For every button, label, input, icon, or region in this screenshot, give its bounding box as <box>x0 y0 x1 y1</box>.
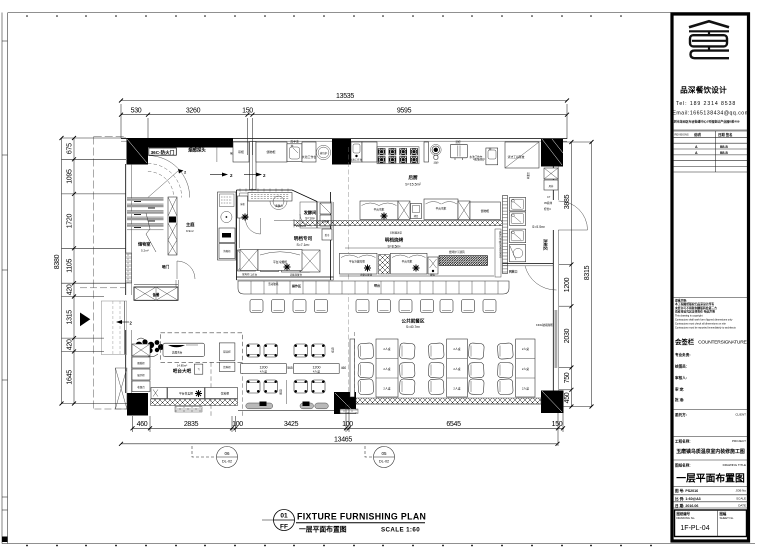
svg-text:平台售卖柜: 平台售卖柜 <box>179 392 193 396</box>
svg-text:Contractors shall work form: Contractors shall work form figured dime… <box>675 318 733 321</box>
svg-text:2人桌: 2人桌 <box>383 387 390 391</box>
svg-text:平台雪柜: 平台雪柜 <box>374 208 385 212</box>
svg-text:9.9m²: 9.9m² <box>186 229 194 233</box>
svg-text:DL-02: DL-02 <box>379 460 389 464</box>
svg-text:1105: 1105 <box>67 258 74 272</box>
svg-text:甜品柜: 甜品柜 <box>223 350 231 354</box>
svg-text:2人桌: 2人桌 <box>453 387 460 391</box>
svg-text:柜位C: 柜位C <box>544 207 551 211</box>
svg-text:2人桌: 2人桌 <box>383 347 390 351</box>
svg-text:日期 签名: 日期 签名 <box>718 132 733 137</box>
svg-text:5.2m²: 5.2m² <box>141 249 149 253</box>
svg-text:冰柜: 冰柜 <box>240 202 245 206</box>
svg-text:说明: 说明 <box>694 132 701 137</box>
svg-text:展示柜: 展示柜 <box>137 373 145 377</box>
svg-text:This drawing is copyright: This drawing is copyright <box>675 314 703 317</box>
svg-text:2人桌: 2人桌 <box>522 347 529 351</box>
svg-text:一层平面布置图: 一层平面布置图 <box>676 472 745 485</box>
svg-text:洗手池: 洗手池 <box>290 140 299 144</box>
svg-text:9595: 9595 <box>397 107 412 114</box>
svg-text:深圳市龙岗区布吉街道中心1号福安达产业园B栋409: 深圳市龙岗区布吉街道中心1号福安达产业园B栋409 <box>671 119 740 124</box>
svg-text:水池工作台: 水池工作台 <box>301 154 316 159</box>
svg-text:烟感探头: 烟感探头 <box>188 147 206 154</box>
svg-text:水池工作台: 水池工作台 <box>470 155 483 159</box>
svg-text:DL-02: DL-02 <box>222 460 232 464</box>
svg-text:2835: 2835 <box>184 421 199 428</box>
svg-text:C7: C7 <box>547 195 551 199</box>
svg-text:绘图员:: 绘图员: <box>675 364 687 369</box>
svg-text:日 期: 2016.06: 日 期: 2016.06 <box>675 503 698 508</box>
svg-text:750: 750 <box>564 372 571 383</box>
svg-text:4人桌: 4人桌 <box>260 370 267 374</box>
svg-text:储物柜: 储物柜 <box>266 149 275 154</box>
svg-text:水池工作台500X600X800: 水池工作台500X600X800 <box>499 231 503 259</box>
svg-text:Tel: 189 2314 8538: Tel: 189 2314 8538 <box>676 101 736 107</box>
svg-text:06: 06 <box>224 451 230 456</box>
svg-text:450: 450 <box>564 392 571 403</box>
svg-text:工作台: 工作台 <box>250 273 258 277</box>
svg-text:图纸名称:: 图纸名称: <box>675 463 691 468</box>
svg-text:会签栏: 会签栏 <box>675 337 695 346</box>
svg-text:2人桌: 2人桌 <box>453 347 460 351</box>
svg-text:审核人:: 审核人: <box>675 375 687 380</box>
svg-text:明档烧烤: 明档烧烤 <box>385 237 404 244</box>
svg-text:FF: FF <box>280 524 288 531</box>
svg-text:SCALE: SCALE <box>736 497 746 501</box>
svg-text:调味就餐台: 调味就餐台 <box>290 273 303 277</box>
svg-text:汤炉: 汤炉 <box>433 161 439 165</box>
svg-text:BB.B: BB.B <box>720 151 728 155</box>
svg-text:8315: 8315 <box>584 265 591 280</box>
svg-text:1095: 1095 <box>67 169 74 184</box>
svg-text:530: 530 <box>131 107 142 114</box>
svg-text:公共就餐区: 公共就餐区 <box>402 318 425 325</box>
svg-text:委托方:: 委托方: <box>675 412 687 417</box>
svg-text:审 定:: 审 定: <box>675 387 684 392</box>
svg-text:S=5.5m²: S=5.5m² <box>532 225 546 229</box>
svg-text:4人桌: 4人桌 <box>313 370 320 374</box>
svg-text:3885: 3885 <box>564 194 571 209</box>
svg-text:批 准:: 批 准: <box>675 397 684 402</box>
svg-text:主庭: 主庭 <box>186 221 195 228</box>
svg-text:水池工作台: 水池工作台 <box>350 158 363 162</box>
svg-text:3260: 3260 <box>186 107 201 114</box>
svg-text:SCALE 1:60: SCALE 1:60 <box>381 527 420 534</box>
svg-text:Contractors must be reporte: Contractors must be reported immediately… <box>675 326 736 329</box>
svg-text:Contractors must check all: Contractors must check all dimensions on… <box>675 322 726 325</box>
svg-text:2030: 2030 <box>564 328 571 343</box>
svg-text:清洁工具存放: 清洁工具存放 <box>508 155 525 159</box>
svg-text:2人桌: 2人桌 <box>453 367 460 371</box>
svg-text:S=40.7m²: S=40.7m² <box>406 325 420 329</box>
svg-text:1F-PL-04: 1F-PL-04 <box>680 525 709 532</box>
svg-text:2人桌: 2人桌 <box>522 367 529 371</box>
svg-text:消毒柜: 消毒柜 <box>223 249 231 253</box>
svg-text:FIXTURE FURNISHING PLAN: FIXTURE FURNISHING PLAN <box>297 512 426 522</box>
svg-text:460: 460 <box>341 366 347 370</box>
svg-text:平台冷藏雪柜: 平台冷藏雪柜 <box>349 260 365 264</box>
svg-text:发酵间: 发酵间 <box>304 209 317 216</box>
svg-text:操作区: 操作区 <box>292 283 301 288</box>
svg-text:暗门: 暗门 <box>162 264 170 269</box>
svg-text:3425: 3425 <box>284 421 299 428</box>
svg-text:13465: 13465 <box>334 437 352 444</box>
svg-text:05: 05 <box>381 451 387 456</box>
svg-text:污碟台: 污碟台 <box>527 172 531 180</box>
svg-text:13535: 13535 <box>336 93 354 100</box>
svg-text:图 号: PS2016: 图 号: PS2016 <box>675 488 698 493</box>
svg-text:BB.B: BB.B <box>720 145 728 149</box>
svg-text:工程名称:: 工程名称: <box>675 439 691 444</box>
svg-text:800: 800 <box>279 389 283 395</box>
svg-text:平台雪柜: 平台雪柜 <box>436 207 447 211</box>
svg-text:KING玻璃隔断: KING玻璃隔断 <box>536 323 553 327</box>
svg-text:36C-防火门: 36C-防火门 <box>151 149 175 156</box>
svg-text:蒸包炉: 蒸包炉 <box>320 151 328 155</box>
svg-text:比 例: 1:60@A3: 比 例: 1:60@A3 <box>675 496 701 501</box>
svg-text:420: 420 <box>67 284 74 295</box>
svg-text:回收口: 回收口 <box>509 270 518 274</box>
svg-text:COUNTERSIGNATURE: COUNTERSIGNATURE <box>698 340 747 346</box>
svg-text:DRAWING TITLE: DRAWING TITLE <box>723 463 746 467</box>
svg-text:1720: 1720 <box>67 214 74 229</box>
svg-text:CLIENT: CLIENT <box>735 413 746 417</box>
svg-text:风井: 风井 <box>549 184 554 188</box>
svg-text:REVISIONS: REVISIONS <box>675 133 689 137</box>
svg-text:100: 100 <box>342 421 353 428</box>
svg-text:一层平面布置图: 一层平面布置图 <box>299 525 347 534</box>
svg-text:玻璃: 玻璃 <box>430 273 435 277</box>
svg-text:565: 565 <box>287 366 293 370</box>
svg-text:Email:1665138434@qq.com: Email:1665138434@qq.com <box>672 111 749 117</box>
svg-text:2人桌: 2人桌 <box>383 367 390 371</box>
svg-text:出餐口玻璃: 出餐口玻璃 <box>360 273 373 277</box>
svg-text:675: 675 <box>67 143 74 154</box>
svg-text:1200: 1200 <box>564 277 571 292</box>
svg-text:回转输送带: 回转输送带 <box>390 231 403 235</box>
svg-text:活动玻璃: 活动玻璃 <box>268 282 279 286</box>
svg-text:150: 150 <box>552 421 563 428</box>
svg-text:420: 420 <box>67 339 74 350</box>
svg-text:蒸柜: 蒸柜 <box>455 140 461 144</box>
svg-text:违者将追究其法律责任 特此声明: 违者将追究其法律责任 特此声明 <box>675 310 715 314</box>
svg-text:SHEET No.: SHEET No. <box>720 516 735 520</box>
svg-text:14.85m²: 14.85m² <box>177 364 187 368</box>
svg-text:吊柜: 吊柜 <box>238 149 244 154</box>
svg-text:JOB No: JOB No <box>735 489 746 493</box>
svg-text:储物室: 储物室 <box>137 241 151 248</box>
svg-text:专业负责:: 专业负责: <box>675 352 691 357</box>
svg-text:2人桌: 2人桌 <box>522 387 529 391</box>
svg-text:饮料柜: 饮料柜 <box>221 392 230 396</box>
svg-text:100: 100 <box>232 421 243 428</box>
svg-text:备餐: 备餐 <box>152 292 160 297</box>
svg-text:玉磨镇乌质温泉室内装修施工图: 玉磨镇乌质温泉室内装修施工图 <box>676 448 745 455</box>
svg-text:配电柜: 配电柜 <box>242 272 250 276</box>
svg-text:蛋糕柜: 蛋糕柜 <box>137 361 145 365</box>
svg-text:后厨: 后厨 <box>408 174 418 181</box>
svg-text:饮料柜: 饮料柜 <box>223 365 231 369</box>
svg-text:平台冷藏柜: 平台冷藏柜 <box>273 260 287 264</box>
svg-text:S=1m²: S=1m² <box>305 217 314 221</box>
svg-text:DRAWING No.: DRAWING No. <box>677 516 696 520</box>
svg-text:1315: 1315 <box>67 310 74 325</box>
svg-text:150: 150 <box>242 107 253 114</box>
svg-text:S=15.5m²: S=15.5m² <box>405 183 421 187</box>
svg-text:平台雪柜: 平台雪柜 <box>402 260 413 264</box>
svg-text:备餐台: 备餐台 <box>275 204 283 208</box>
svg-text:吧台大吧: 吧台大吧 <box>173 368 192 375</box>
svg-text:品深餐饮设计: 品深餐饮设计 <box>680 85 727 95</box>
svg-text:01: 01 <box>280 513 288 520</box>
svg-text:615: 615 <box>331 347 335 353</box>
svg-text:S=7.1m²: S=7.1m² <box>297 243 311 247</box>
svg-text:PROJECT: PROJECT <box>732 439 746 443</box>
svg-text:储物柜: 储物柜 <box>481 209 490 213</box>
svg-text:A: A <box>695 151 698 155</box>
svg-text:总服务台: 总服务台 <box>172 351 183 355</box>
svg-text:燃烤炉下通风: 燃烤炉下通风 <box>449 250 465 254</box>
svg-text:明档专司: 明档专司 <box>294 235 313 242</box>
svg-text:460: 460 <box>137 421 148 428</box>
svg-text:收银台: 收银台 <box>137 385 145 389</box>
svg-text:1645: 1645 <box>67 370 74 385</box>
svg-text:DATE: DATE <box>738 503 746 507</box>
svg-text:吧台: 吧台 <box>374 283 380 288</box>
svg-text:A: A <box>695 145 698 149</box>
svg-text:6545: 6545 <box>446 421 461 428</box>
svg-text:洗碗区: 洗碗区 <box>543 239 548 251</box>
svg-text:05栋体: 05栋体 <box>544 201 552 205</box>
svg-text:8380: 8380 <box>54 254 61 269</box>
